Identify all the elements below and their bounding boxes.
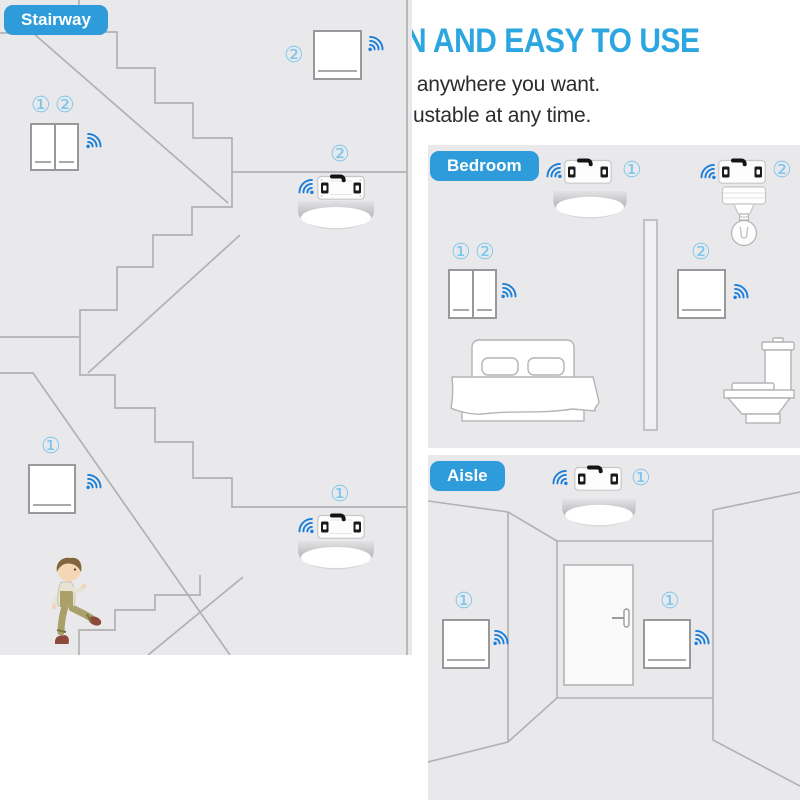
receiver-module-icon [564,157,612,184]
bed-illustration [442,339,604,425]
switch-number-badge: ② [691,242,711,264]
receiver-number-badge: ① [631,468,651,490]
bedroom-panel: Bedroom ① [428,145,800,448]
pendant-lamp-icon [721,186,767,250]
switch-number-badge: ① [451,242,471,264]
wifi-icon [693,627,712,647]
wifi-icon [85,130,104,150]
wifi-icon [367,33,386,53]
receiver-module-icon [317,512,365,539]
wifi-icon [492,627,511,647]
stairway-panel: Stairway ② ① ② ② [0,0,412,655]
wifi-icon [550,467,569,487]
switch-number-badge: ① [660,591,680,613]
switch-number-badge: ① [41,436,61,458]
aisle-tag: Aisle [430,461,505,491]
receiver-number-badge: ② [330,144,350,166]
ceiling-light-icon [559,499,639,529]
switch-number-badge: ② [284,45,304,67]
installation-infographic: SIMPLE INSTALLATION AND EASY TO USE Stic… [0,0,800,800]
walking-child-illustration [40,556,104,654]
ceiling-light-icon [550,191,630,221]
receiver-module-icon [718,157,766,184]
receiver-number-badge: ① [330,484,350,506]
room-divider-wall [643,219,658,431]
aisle-panel: Aisle ① ① ① [428,455,800,800]
receiver-module-icon [317,173,365,200]
wifi-icon [732,281,751,301]
toilet-illustration [720,337,798,425]
wall-switch-1gang [442,619,490,669]
wifi-icon [544,160,563,180]
receiver-number-badge: ① [622,160,642,182]
bedroom-tag: Bedroom [430,151,539,181]
wall-switch-1gang [677,269,726,319]
wifi-icon [85,471,104,491]
wifi-icon [698,161,717,181]
wifi-icon [500,280,519,300]
ceiling-light-icon [295,541,377,572]
switch-number-badge: ① [31,95,51,117]
ceiling-light-icon [295,201,377,232]
wall-switch-1gang [313,30,362,80]
switch-number-badge: ① [454,591,474,613]
wall-switch-2gang [30,123,79,171]
switch-number-badge: ② [55,95,75,117]
stairway-tag: Stairway [4,5,108,35]
wall-switch-2gang [448,269,497,319]
receiver-number-badge: ② [772,160,792,182]
wall-switch-1gang [28,464,76,514]
wifi-icon [296,515,315,535]
switch-number-badge: ② [475,242,495,264]
receiver-module-icon [574,464,622,491]
wall-switch-1gang [643,619,691,669]
wifi-icon [296,176,315,196]
